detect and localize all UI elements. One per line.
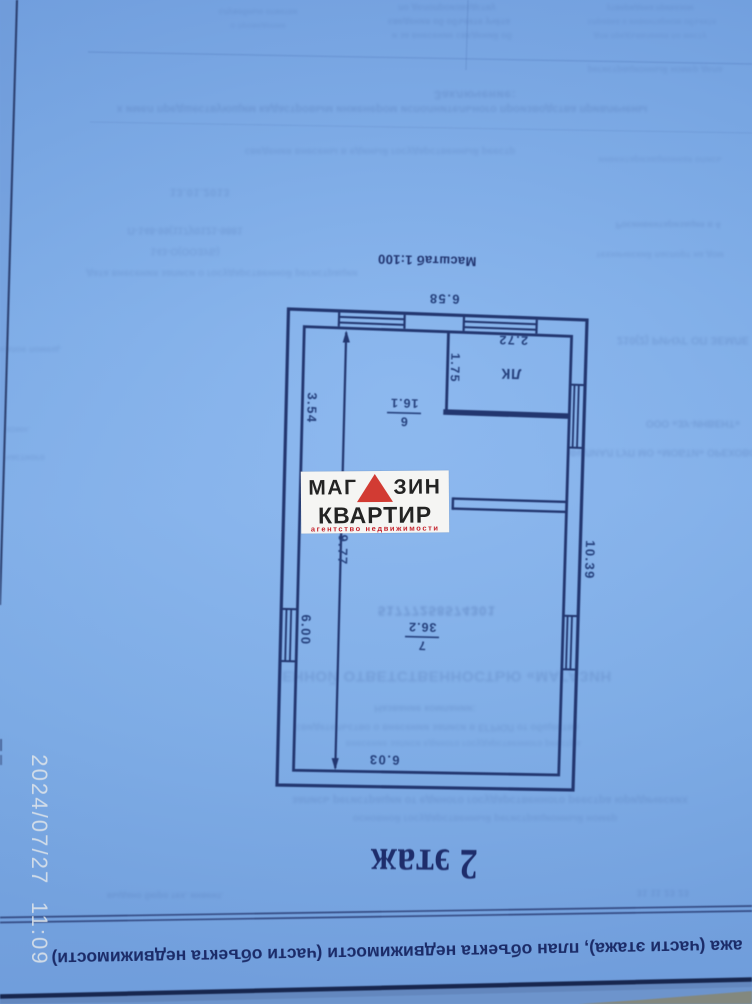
- svg-text:16.1: 16.1: [390, 396, 419, 411]
- svg-text:2.72: 2.72: [498, 333, 528, 348]
- svg-text:6.00: 6.00: [298, 614, 314, 645]
- svg-text:7: 7: [418, 638, 426, 652]
- svg-text:10.39: 10.39: [582, 540, 598, 580]
- svg-text:Масштаб 1:100: Масштаб 1:100: [378, 252, 477, 270]
- svg-text:ЛК: ЛК: [500, 365, 521, 382]
- svg-text:36.2: 36.2: [408, 620, 437, 635]
- svg-text:1.75: 1.75: [448, 353, 463, 383]
- svg-text:6.58: 6.58: [428, 291, 459, 307]
- svg-text:9.77: 9.77: [335, 534, 351, 565]
- svg-text:3.54: 3.54: [304, 392, 320, 423]
- svg-text:6.03: 6.03: [368, 752, 399, 768]
- svg-text:6: 6: [400, 414, 408, 428]
